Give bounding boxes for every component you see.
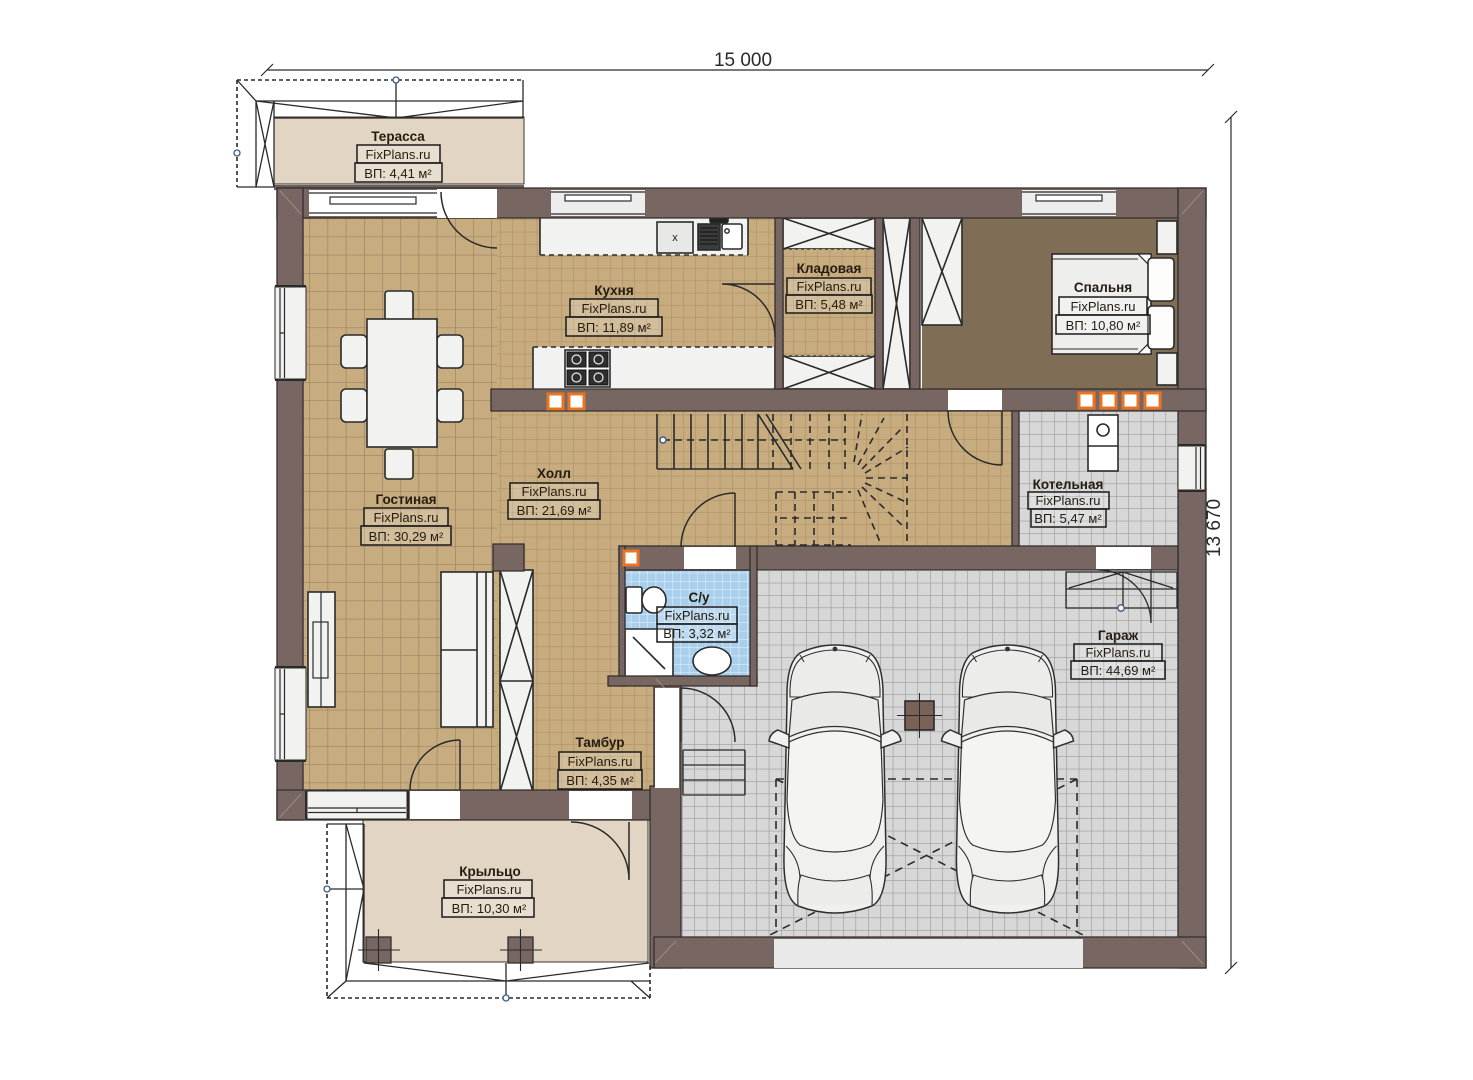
svg-text:ВП: 5,48 м²: ВП: 5,48 м² [795,297,863,312]
svg-text:ВП: 11,89 м²: ВП: 11,89 м² [577,320,651,335]
svg-text:ВП: 4,35 м²: ВП: 4,35 м² [566,773,634,788]
svg-text:x: x [672,232,678,244]
svg-text:С/у: С/у [688,590,710,605]
svg-text:ВП: 3,32 м²: ВП: 3,32 м² [663,626,731,641]
svg-text:FixPlans.ru: FixPlans.ru [664,608,729,623]
svg-text:Гараж: Гараж [1098,628,1139,643]
svg-text:Холл: Холл [537,466,571,481]
svg-text:Котельная: Котельная [1033,477,1104,492]
svg-text:FixPlans.ru: FixPlans.ru [581,301,646,316]
svg-text:ВП: 44,69 м²: ВП: 44,69 м² [1081,663,1156,678]
svg-text:13 670: 13 670 [1204,499,1225,557]
svg-text:ВП: 10,80 м²: ВП: 10,80 м² [1066,318,1141,333]
svg-text:Кладовая: Кладовая [797,261,862,276]
svg-text:Кухня: Кухня [594,283,633,298]
svg-text:ВП: 21,69 м²: ВП: 21,69 м² [517,503,592,518]
svg-text:FixPlans.ru: FixPlans.ru [1085,645,1150,660]
svg-text:FixPlans.ru: FixPlans.ru [373,510,438,525]
svg-text:15 000: 15 000 [714,50,772,71]
svg-text:FixPlans.ru: FixPlans.ru [456,882,521,897]
svg-text:FixPlans.ru: FixPlans.ru [521,484,586,499]
svg-text:Терасса: Терасса [371,129,425,144]
svg-text:ВП: 30,29 м²: ВП: 30,29 м² [369,529,444,544]
svg-text:ВП: 5,47 м²: ВП: 5,47 м² [1034,511,1102,526]
svg-text:ВП: 4,41 м²: ВП: 4,41 м² [364,166,432,181]
svg-text:FixPlans.ru: FixPlans.ru [567,754,632,769]
svg-text:Крыльцо: Крыльцо [459,864,520,879]
svg-text:FixPlans.ru: FixPlans.ru [1035,493,1100,508]
svg-text:FixPlans.ru: FixPlans.ru [1070,299,1135,314]
svg-text:Спальня: Спальня [1074,280,1132,295]
svg-text:FixPlans.ru: FixPlans.ru [796,279,861,294]
svg-text:Гостиная: Гостиная [375,492,436,507]
svg-text:FixPlans.ru: FixPlans.ru [365,147,430,162]
svg-text:Тамбур: Тамбур [576,735,625,750]
svg-text:ВП: 10,30 м²: ВП: 10,30 м² [452,901,527,916]
